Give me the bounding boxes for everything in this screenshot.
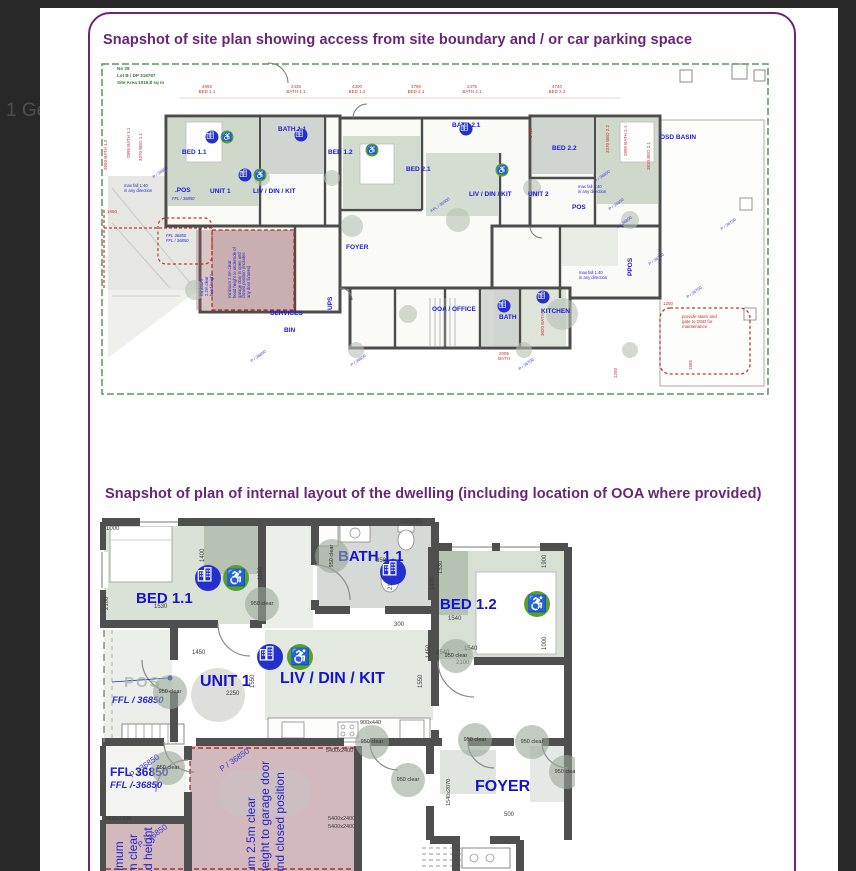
plan-label: 5400x2400 (326, 748, 353, 754)
plan-label: 3370 BED 2.2 (605, 125, 610, 153)
plan-label: LIV / DIN / KIT (469, 191, 512, 198)
plan-label: 500 (504, 812, 514, 819)
wheelchair-access-icon: ♿ (287, 644, 313, 670)
plan-label: 1180 (258, 567, 265, 580)
plan-label: OSD BASIN (660, 134, 696, 141)
plan-label: 1460 (528, 128, 533, 138)
buildings-icon (380, 559, 406, 585)
wheelchair-access-icon: ♿ (221, 131, 234, 144)
plan-label: .POS (175, 187, 191, 194)
plan-label: UPS (327, 297, 334, 310)
plan-label: 1600(900) (400, 520, 423, 526)
section-title-site-plan: Snapshot of site plan showing access fro… (103, 32, 692, 48)
plan-label: 1450 (426, 645, 433, 658)
plan-label: 1450 (192, 650, 205, 657)
plan-label: 2250 (226, 691, 239, 698)
plan-label: BED 2.1 (406, 166, 431, 173)
plan-label: 5400x2400 (328, 816, 355, 822)
plan-label: 1900 (542, 555, 549, 568)
plan-label: PPOS (627, 258, 634, 276)
plan-label: 2895 BATH 2.1 (623, 126, 628, 156)
buildings-icon (206, 131, 219, 144)
buildings-icon (257, 644, 283, 670)
plan-label: FOYER (475, 778, 530, 796)
screenshot-root: { "page": { "bg_text": "1 Ge", "title1":… (0, 0, 856, 871)
plan-label: 2435 BATH 1.1 (286, 84, 305, 94)
plan-label: 950 clear (549, 755, 575, 789)
plan-label: POS (572, 204, 586, 211)
plan-label: 300 (394, 622, 404, 629)
plan-label: 1000 (106, 526, 119, 533)
plan-label: 1550 (250, 675, 257, 688)
buildings-icon (537, 291, 550, 304)
plan-label: FOYER (346, 244, 368, 251)
buildings-icon (239, 169, 252, 182)
plan-label: UNIT 1 (200, 673, 251, 691)
wheelchair-access-icon: ♿ (254, 169, 267, 182)
plan-label: 5400x2400 (328, 824, 355, 830)
plan-label: LIV / DIN / KIT (253, 188, 296, 195)
plan-label: 1650 (107, 209, 117, 214)
plan-label: UNIT 1 (210, 188, 231, 195)
plan-label: provide stairs and gate to OSD for maint… (682, 314, 717, 329)
plan-label: 950 clear (515, 725, 549, 759)
plan-label: FFL / 36850 (172, 197, 195, 202)
plan-label: 950 clear (355, 725, 389, 759)
buildings-icon (295, 129, 308, 142)
plan-label: 2095 BATH (498, 351, 510, 361)
plan-label: minimum 2.5m clear head height to garage… (244, 761, 287, 871)
plan-label: 950 clear (245, 587, 279, 621)
plan-label: 3370 BED 1.1 (138, 133, 143, 161)
plan-label: KITCHEN (541, 308, 570, 315)
section-title-internal-plan: Snapshot of plan of internal layout of t… (105, 486, 762, 502)
plan-label: 1550 (418, 675, 425, 688)
plan-label: max fall 1:40 in any direction (578, 185, 606, 195)
internal-plan-figure: BED 1.1BATH 1.1BED 1.2UNIT 12250LIV / DI… (100, 510, 575, 871)
plan-label: BIN (284, 327, 295, 334)
document-page[interactable]: Snapshot of site plan showing access fro… (40, 8, 838, 871)
plan-label: LIV / DIN / KIT (280, 670, 385, 688)
plan-label: FFL 36850 FFL / 36850 (166, 234, 189, 244)
plan-label: 1540 (448, 616, 461, 623)
plan-label: 1400 (200, 549, 207, 562)
site-plan-figure: No 28 Lot B / DP 318787 Site Area 1015.8… (100, 58, 773, 398)
plan-label: 3020 BATH (540, 313, 545, 336)
plan-label: 2475 BATH 2.1 (462, 84, 481, 94)
site-plan-drawing (100, 58, 773, 398)
plan-label: 2895 BATH 1.1 (126, 128, 131, 158)
plan-label: UNIT 2 (528, 191, 549, 198)
plan-label: 2100 (104, 597, 111, 610)
wheelchair-access-icon: ♿ (223, 565, 249, 591)
plan-label: OOA / OFFICE (432, 306, 476, 313)
plan-label: BED 1.2 (440, 596, 497, 613)
wheelchair-access-icon: ♿ (496, 164, 509, 177)
plan-label: 1530 (154, 604, 167, 611)
plan-label: 950 clear (439, 639, 473, 673)
plan-label: 1530 (438, 561, 445, 574)
plan-label: 3810 BED 2.1 (646, 142, 651, 170)
plan-label: 1000 (542, 637, 549, 650)
plan-label: 4740 BED 2.2 (549, 84, 566, 94)
plan-label: 1685 (688, 360, 693, 370)
plan-label: 950 clear (391, 763, 425, 797)
plan-label: BED 2.2 (552, 145, 577, 152)
plan-label: 1540x2070 (446, 779, 452, 806)
plan-label: minimum 2.2m clear head height (200, 274, 214, 296)
wheelchair-access-icon: ♿ (524, 591, 550, 617)
plan-label: 2400x2400 (104, 816, 131, 822)
plan-label: 3760 BED 2.1 (408, 84, 425, 94)
plan-label: BATH (499, 314, 517, 321)
plan-label: 1400 (430, 577, 437, 590)
plan-label: 3650 BATH 1.2 (103, 140, 108, 170)
plan-label: max fall 1:40 in any direction (579, 271, 607, 281)
plan-label: 950 clear (315, 539, 349, 573)
plan-label: 950 clear (458, 723, 492, 757)
plan-label: 1250 (663, 301, 673, 306)
plan-label: minimum 2.5m clear head height to unders… (228, 247, 252, 298)
plan-label: No 28 Lot B / DP 318787 Site Area 1015.8… (117, 66, 164, 87)
plan-label: 4955 BED 1.1 (199, 84, 216, 94)
buildings-icon (460, 123, 473, 136)
buildings-icon (195, 565, 221, 591)
plan-label: BED 1.1 (182, 149, 207, 156)
plan-label: max fall 1:40 in any direction (124, 184, 152, 194)
plan-label: 4300 BED 1.2 (349, 84, 366, 94)
plan-label: 1250 (613, 368, 618, 378)
wheelchair-access-icon: ♿ (366, 144, 379, 157)
plan-label: SERVICES (270, 310, 303, 317)
plan-label: 950 clear (153, 675, 187, 709)
buildings-icon (498, 300, 511, 313)
plan-label: BED 1.2 (328, 149, 353, 156)
plan-label: FFL /-36850 (110, 781, 162, 792)
